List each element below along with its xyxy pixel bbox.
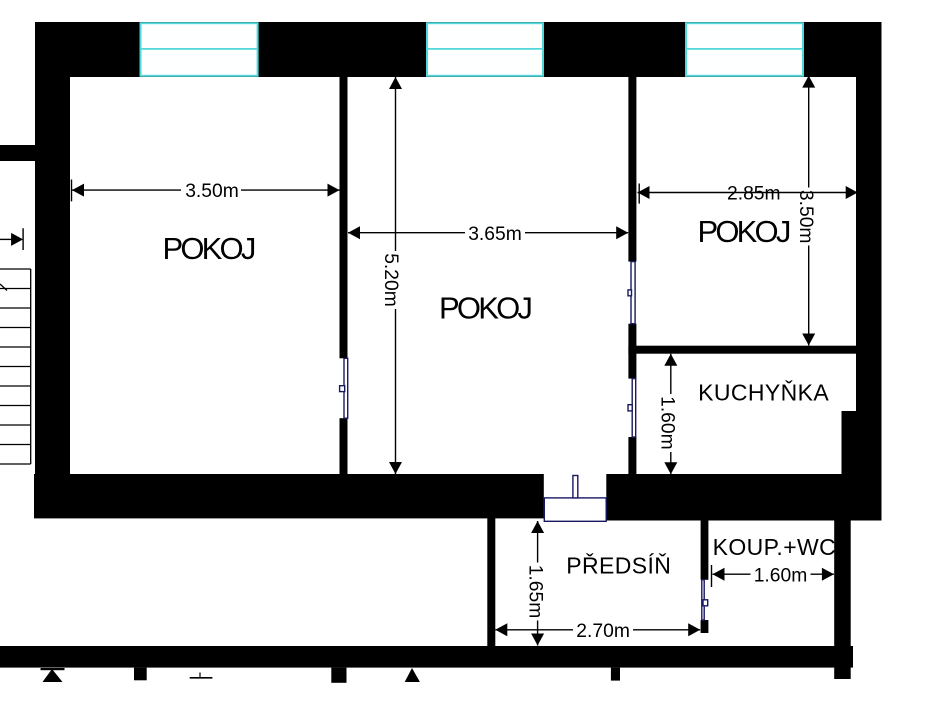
svg-text:2.85m: 2.85m [727, 184, 781, 205]
svg-text:3.50m: 3.50m [795, 190, 816, 244]
svg-text:POKOJ: POKOJ [439, 291, 531, 326]
svg-text:5.20m: 5.20m [380, 253, 401, 307]
svg-text:3.65m: 3.65m [468, 224, 522, 245]
svg-text:POKOJ: POKOJ [162, 231, 254, 266]
svg-text:1.60m: 1.60m [657, 396, 678, 450]
svg-text:KUCHYŇKA: KUCHYŇKA [698, 379, 829, 405]
svg-text:1.65m: 1.65m [524, 565, 545, 619]
svg-text:2.70m: 2.70m [576, 621, 630, 642]
svg-text:1.60m: 1.60m [754, 565, 808, 586]
svg-text:3.50m: 3.50m [185, 181, 239, 202]
svg-text:KOUP.+WC: KOUP.+WC [713, 534, 837, 560]
svg-text:PŘEDSÍŇ: PŘEDSÍŇ [566, 553, 671, 579]
svg-text:POKOJ: POKOJ [697, 214, 789, 249]
